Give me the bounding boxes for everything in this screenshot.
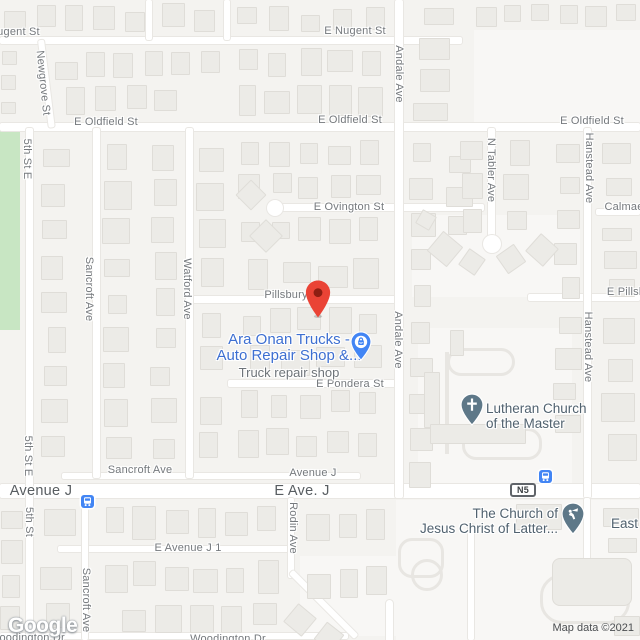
building bbox=[424, 8, 454, 26]
building bbox=[41, 292, 67, 313]
cul-de-sac-bulb bbox=[483, 235, 501, 253]
business-category: Truck repair shop bbox=[213, 365, 365, 380]
building bbox=[273, 173, 292, 193]
building bbox=[296, 436, 317, 458]
building bbox=[329, 85, 352, 116]
building bbox=[531, 4, 549, 21]
building bbox=[153, 439, 175, 459]
building bbox=[171, 52, 191, 75]
building bbox=[106, 507, 125, 533]
building bbox=[66, 87, 86, 115]
poi-label-lutheran-church[interactable]: Lutheran Church of the Master bbox=[486, 401, 587, 431]
street-label: Sancroft Ave bbox=[108, 464, 173, 476]
building bbox=[264, 91, 290, 113]
building bbox=[43, 149, 70, 167]
building bbox=[301, 48, 323, 75]
street-label: E Oldfield St bbox=[318, 114, 382, 126]
bus-icon bbox=[540, 471, 551, 482]
building bbox=[359, 392, 376, 413]
building bbox=[604, 251, 637, 268]
building bbox=[554, 243, 578, 265]
building bbox=[154, 90, 177, 112]
transit-station-icon[interactable] bbox=[81, 495, 94, 508]
building bbox=[151, 217, 174, 243]
road bbox=[26, 128, 33, 640]
building bbox=[562, 277, 581, 299]
building bbox=[221, 606, 242, 633]
building bbox=[608, 434, 637, 462]
building bbox=[152, 145, 173, 171]
map-attribution: Map data ©2021 bbox=[553, 622, 635, 634]
building bbox=[104, 181, 132, 210]
transit-station-icon[interactable] bbox=[539, 470, 552, 483]
building bbox=[105, 565, 128, 594]
building bbox=[2, 575, 20, 597]
building bbox=[504, 5, 521, 23]
building bbox=[162, 3, 185, 27]
street-label: 5th St bbox=[23, 507, 35, 537]
building bbox=[271, 395, 287, 418]
building bbox=[198, 508, 216, 538]
building bbox=[413, 103, 449, 121]
building bbox=[95, 86, 116, 110]
business-name-line1: Ara Onan Trucks - bbox=[213, 332, 365, 348]
street-label: Hanstead Ave bbox=[583, 133, 595, 204]
street-label: E Oldfield St bbox=[74, 116, 138, 128]
business-label-ara-onan-trucks[interactable]: Ara Onan Trucks - Auto Repair Shop &... … bbox=[213, 332, 365, 380]
building bbox=[199, 148, 224, 172]
street-label: N Tabler Ave bbox=[485, 138, 497, 202]
road bbox=[0, 37, 462, 44]
bus-icon bbox=[82, 496, 93, 507]
building bbox=[507, 211, 527, 230]
lds-line2: Jesus Christ of Latter... bbox=[420, 521, 558, 536]
building bbox=[358, 433, 378, 457]
building bbox=[103, 363, 125, 388]
building bbox=[133, 561, 156, 586]
building bbox=[411, 322, 430, 343]
building bbox=[420, 69, 449, 92]
lds-church-pin-icon[interactable] bbox=[561, 502, 585, 535]
building bbox=[616, 4, 636, 21]
building bbox=[414, 285, 431, 307]
street-label: E Ovington St bbox=[314, 201, 384, 213]
building bbox=[409, 462, 431, 488]
building bbox=[360, 140, 379, 165]
building bbox=[601, 393, 635, 422]
building bbox=[606, 178, 631, 196]
building bbox=[258, 560, 279, 593]
street-label: Avenue J bbox=[289, 467, 336, 479]
building bbox=[193, 569, 219, 594]
street-label: 5th St E bbox=[21, 139, 33, 180]
building bbox=[40, 567, 72, 590]
route-shield-n5: N5 bbox=[510, 483, 536, 497]
destination-pin-icon[interactable] bbox=[305, 280, 331, 318]
building bbox=[603, 318, 635, 345]
building bbox=[239, 85, 257, 115]
lds-line1: The Church of bbox=[420, 506, 558, 521]
building bbox=[356, 175, 381, 194]
building bbox=[329, 219, 351, 244]
building bbox=[104, 399, 128, 427]
building bbox=[145, 51, 163, 76]
building bbox=[190, 605, 215, 634]
building bbox=[237, 7, 257, 24]
building bbox=[327, 431, 349, 453]
building bbox=[225, 512, 247, 536]
building bbox=[268, 53, 287, 77]
church-pin-icon[interactable] bbox=[460, 393, 484, 426]
building bbox=[122, 610, 147, 632]
building bbox=[307, 574, 330, 598]
building bbox=[106, 437, 132, 459]
road bbox=[386, 600, 393, 640]
building bbox=[241, 142, 260, 165]
building bbox=[156, 288, 175, 316]
building bbox=[93, 6, 115, 30]
building bbox=[241, 390, 258, 418]
building bbox=[602, 228, 632, 241]
building bbox=[42, 220, 67, 239]
street-label: Watford Ave bbox=[181, 258, 193, 320]
building bbox=[257, 506, 276, 531]
building bbox=[510, 140, 530, 166]
building bbox=[165, 567, 188, 592]
street-label: E Pillsbury bbox=[607, 286, 640, 298]
building bbox=[1, 540, 24, 564]
building bbox=[1, 102, 16, 115]
street-label: Pillsbury bbox=[264, 289, 307, 301]
street-label: E Nugent St bbox=[324, 25, 386, 37]
building bbox=[44, 509, 76, 536]
building bbox=[366, 509, 385, 540]
street-label: Rodin Ave bbox=[287, 502, 299, 554]
road bbox=[146, 0, 152, 40]
building bbox=[340, 569, 358, 598]
street-label: 5th St E bbox=[22, 436, 34, 477]
building bbox=[424, 372, 440, 428]
lutheran-line2: of the Master bbox=[486, 416, 587, 431]
street-label: Newgrove St bbox=[34, 50, 53, 116]
building bbox=[41, 256, 63, 280]
building bbox=[239, 49, 258, 70]
building bbox=[132, 506, 156, 540]
building bbox=[555, 348, 582, 370]
building bbox=[48, 327, 67, 352]
building bbox=[65, 5, 82, 31]
building bbox=[585, 6, 607, 27]
building bbox=[238, 430, 259, 458]
street-label: Avenue J bbox=[10, 483, 73, 499]
building bbox=[328, 146, 351, 165]
building bbox=[41, 399, 68, 423]
building bbox=[41, 184, 65, 207]
building bbox=[358, 87, 383, 117]
building bbox=[86, 52, 105, 77]
building bbox=[194, 10, 215, 33]
building bbox=[419, 38, 450, 60]
road bbox=[468, 524, 474, 640]
building bbox=[362, 51, 381, 76]
street-label: Hanstead Ave bbox=[582, 312, 594, 383]
building bbox=[463, 209, 482, 234]
building bbox=[557, 210, 581, 229]
map-canvas[interactable]: E Nugent StE Nugent StNewgrove StE Oldfi… bbox=[0, 0, 640, 640]
building bbox=[226, 568, 245, 592]
building bbox=[608, 359, 633, 382]
building bbox=[556, 144, 580, 163]
building bbox=[503, 174, 529, 200]
street-label: Andale Ave bbox=[392, 311, 404, 368]
building bbox=[450, 330, 464, 356]
building bbox=[199, 432, 218, 458]
building bbox=[248, 259, 269, 290]
google-logo[interactable]: Google bbox=[8, 614, 77, 638]
street-label: E Ave. J bbox=[274, 483, 329, 499]
park-area bbox=[0, 128, 20, 330]
street-label: E Avenue J 1 bbox=[154, 542, 221, 554]
building bbox=[201, 51, 220, 74]
building bbox=[201, 258, 224, 288]
building bbox=[560, 177, 581, 194]
street-label: Calmae bbox=[604, 201, 640, 213]
building bbox=[476, 7, 497, 27]
building bbox=[166, 510, 190, 534]
building bbox=[339, 514, 357, 538]
building bbox=[102, 218, 130, 244]
building bbox=[359, 217, 377, 241]
building bbox=[1, 511, 23, 529]
business-name-line2: Auto Repair Shop &... bbox=[213, 348, 365, 364]
building bbox=[266, 428, 289, 454]
building bbox=[331, 390, 351, 412]
building bbox=[107, 144, 126, 170]
road bbox=[224, 0, 230, 40]
building bbox=[602, 143, 631, 164]
building bbox=[44, 366, 66, 386]
building bbox=[104, 259, 130, 278]
building bbox=[553, 383, 576, 400]
building bbox=[199, 219, 226, 248]
street-label: Sancroft Ave bbox=[83, 257, 95, 322]
building bbox=[413, 143, 431, 161]
building bbox=[560, 5, 578, 23]
building bbox=[156, 328, 177, 348]
building bbox=[298, 177, 318, 199]
building bbox=[327, 50, 352, 72]
building bbox=[151, 398, 177, 423]
building bbox=[300, 143, 318, 164]
building bbox=[298, 217, 321, 241]
street-label: E Nugent St bbox=[0, 26, 40, 38]
poi-label-lds-church[interactable]: The Church of Jesus Christ of Latter... bbox=[420, 506, 558, 536]
street-label: E Oldfield St bbox=[560, 115, 624, 127]
building bbox=[366, 566, 387, 595]
building bbox=[37, 5, 56, 27]
building bbox=[113, 53, 133, 78]
building bbox=[306, 514, 329, 541]
empty-lot bbox=[474, 30, 640, 124]
street-label: Woodington Dr bbox=[190, 633, 266, 640]
building bbox=[55, 62, 78, 80]
cul-de-sac-bulb bbox=[267, 200, 283, 216]
building bbox=[269, 6, 289, 31]
building bbox=[155, 252, 177, 280]
building bbox=[270, 308, 291, 333]
building bbox=[253, 603, 277, 625]
building bbox=[331, 175, 351, 198]
building bbox=[608, 538, 637, 554]
building bbox=[200, 397, 222, 425]
building bbox=[150, 367, 169, 386]
building bbox=[41, 436, 66, 457]
building bbox=[1, 75, 16, 90]
building bbox=[301, 15, 321, 32]
building bbox=[103, 327, 128, 352]
building bbox=[108, 295, 127, 314]
shop-pin-icon[interactable] bbox=[350, 331, 372, 361]
driveway bbox=[398, 538, 444, 578]
building bbox=[353, 258, 379, 289]
building bbox=[460, 141, 483, 160]
poi-label-east[interactable]: East bbox=[611, 516, 638, 531]
building bbox=[552, 558, 632, 606]
building bbox=[300, 395, 321, 419]
building bbox=[154, 179, 177, 206]
building bbox=[2, 51, 17, 65]
building bbox=[125, 12, 145, 31]
building bbox=[462, 173, 483, 199]
street-label: Andale Ave bbox=[393, 45, 405, 102]
building bbox=[297, 85, 322, 114]
building bbox=[269, 142, 289, 167]
building bbox=[409, 178, 432, 200]
building bbox=[127, 85, 147, 109]
building bbox=[559, 317, 582, 334]
building bbox=[196, 183, 224, 211]
street-label: Sancroft Ave bbox=[80, 568, 92, 633]
building bbox=[155, 605, 182, 634]
lutheran-line1: Lutheran Church bbox=[486, 401, 587, 416]
